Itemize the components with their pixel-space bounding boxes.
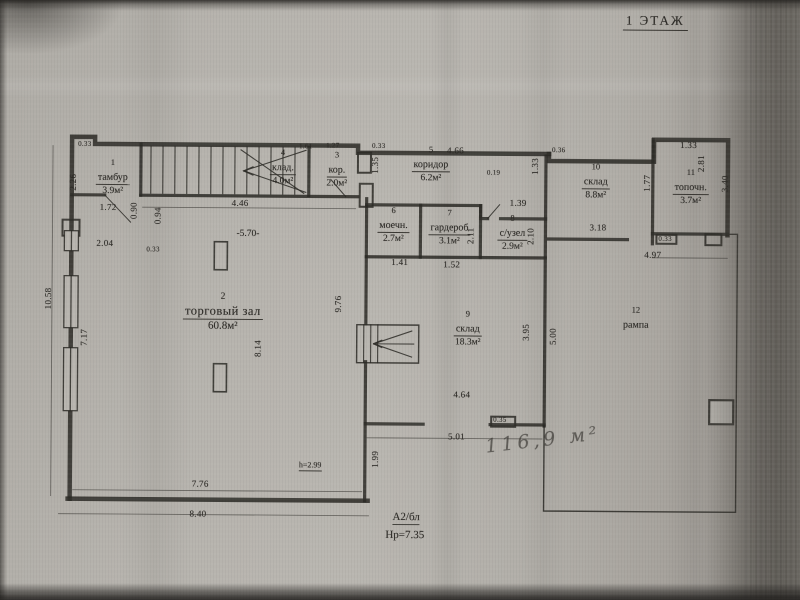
room-number: 1 bbox=[81, 158, 145, 168]
room-area: 6.2м² bbox=[399, 172, 463, 184]
room-name: рампа bbox=[621, 321, 651, 332]
dim-label: 4.46 bbox=[232, 198, 249, 208]
dim-label: 1.61 bbox=[299, 142, 313, 150]
room-label-3: 3 кор. 2.0м² bbox=[316, 150, 358, 189]
room-name: топочн. bbox=[673, 183, 709, 195]
room-name: с/узел bbox=[498, 229, 528, 241]
floor-plan: 1 ЭТАЖ bbox=[0, 0, 800, 600]
room-name: клад. bbox=[270, 163, 296, 175]
dim-label: 0.19 bbox=[487, 169, 501, 177]
room-area: 2.0м² bbox=[316, 177, 358, 189]
dim-label: 2.11 bbox=[465, 227, 475, 244]
dim-label: 2.26 bbox=[68, 174, 78, 191]
dim-label: 0.33 bbox=[372, 142, 386, 150]
dim-label: 1.41 bbox=[391, 257, 408, 267]
room-number: 8 bbox=[485, 214, 541, 224]
dim-label: 3.95 bbox=[521, 324, 531, 341]
room-label-12: 12 рампа bbox=[610, 305, 662, 333]
room-label-11: 11 топочн. 3.7м² bbox=[659, 168, 723, 207]
room-number: 3 bbox=[316, 150, 358, 159]
dim-label: 1.35 bbox=[370, 157, 380, 174]
room-label-4: 4 клад. 4.0м² bbox=[259, 148, 307, 187]
dim-label: 1.99 bbox=[370, 451, 380, 468]
room-label-1: 1 тамбур 3.9м² bbox=[81, 158, 145, 197]
dim-label: 8.14 bbox=[253, 340, 263, 357]
dim-label: 4.66 bbox=[447, 145, 464, 155]
room-number: 10 bbox=[565, 162, 627, 172]
room-area: 4.0м² bbox=[259, 175, 307, 187]
dim-label: 1.72 bbox=[100, 202, 117, 212]
room-area: 3.7м² bbox=[659, 195, 723, 207]
room-area: 18.3м² bbox=[438, 336, 498, 348]
room-number: 11 bbox=[659, 168, 723, 178]
dim-label: 0.33 bbox=[146, 245, 160, 253]
room-area: 2.7м² bbox=[368, 233, 418, 245]
plan-linework bbox=[0, 0, 800, 600]
dim-label: 0.33 bbox=[78, 140, 92, 148]
dim-label: 1.39 bbox=[510, 198, 527, 208]
dim-label: 1.33 bbox=[680, 140, 697, 150]
ceiling-height-note: h=2.99 bbox=[299, 460, 322, 471]
room-name: коридор bbox=[411, 160, 450, 172]
room-area: 8.8м² bbox=[565, 189, 627, 201]
elevation-mark: -5.70- bbox=[236, 229, 259, 239]
dim-label: 5.00 bbox=[548, 328, 558, 345]
room-number: 9 bbox=[438, 309, 498, 319]
dim-label: 0.90 bbox=[129, 202, 139, 219]
dim-label: 3.40 bbox=[720, 175, 730, 192]
scanned-floor-plan-page: 1 ЭТАЖ bbox=[0, 0, 800, 600]
room-label-6: 6 моечн. 2.7м² bbox=[368, 206, 418, 245]
room-area: 3.9м² bbox=[81, 185, 145, 197]
dim-label: 1.77 bbox=[642, 175, 652, 192]
dim-label: 8.40 bbox=[189, 509, 206, 519]
dim-label: 4.97 bbox=[644, 250, 661, 260]
dim-label: 7.76 bbox=[192, 479, 209, 489]
dim-label: 7.17 bbox=[79, 329, 89, 346]
room-area: 60.8м² bbox=[158, 319, 288, 333]
room-number: 12 bbox=[610, 305, 662, 315]
dim-label: 1.33 bbox=[530, 158, 540, 175]
room-name: склад bbox=[582, 177, 610, 189]
room-name: кор. bbox=[326, 166, 347, 178]
room-name: склад bbox=[454, 325, 482, 337]
dim-label: 2.81 bbox=[696, 155, 706, 172]
dim-label: 1.27 bbox=[326, 141, 340, 149]
dim-label: 9.76 bbox=[333, 296, 343, 313]
room-label-2: 2 торговый зал 60.8м² bbox=[158, 291, 288, 333]
dim-label: 2.04 bbox=[96, 238, 113, 248]
room-name: тамбур bbox=[96, 173, 130, 185]
dim-label: 0.94 bbox=[153, 207, 163, 224]
room-name: торговый зал bbox=[183, 305, 263, 320]
room-name: гардероб bbox=[428, 223, 470, 235]
entry-steps bbox=[357, 325, 419, 363]
dim-label: 4.64 bbox=[453, 389, 470, 399]
dim-label: 0.35 bbox=[493, 416, 507, 424]
room-name: моечн. bbox=[377, 221, 410, 233]
section-label: А2/бл bbox=[392, 511, 419, 525]
dim-label: 5.01 bbox=[448, 431, 465, 441]
room-number: 7 bbox=[421, 208, 479, 218]
dim-label: 2.10 bbox=[525, 228, 535, 245]
dim-label: 0.33 bbox=[658, 235, 672, 243]
room-number: 6 bbox=[369, 206, 419, 216]
section-height-label: Нр=7.35 bbox=[385, 529, 424, 541]
room-label-9: 9 склад 18.3м² bbox=[438, 309, 498, 348]
ramp-boundary bbox=[544, 233, 738, 512]
dim-label: 10.58 bbox=[43, 288, 53, 310]
dim-label: 1.52 bbox=[443, 259, 460, 269]
room-label-10: 10 склад 8.8м² bbox=[565, 162, 627, 201]
dim-label: 3.18 bbox=[589, 222, 606, 232]
dim-label: 0.36 bbox=[552, 146, 566, 154]
